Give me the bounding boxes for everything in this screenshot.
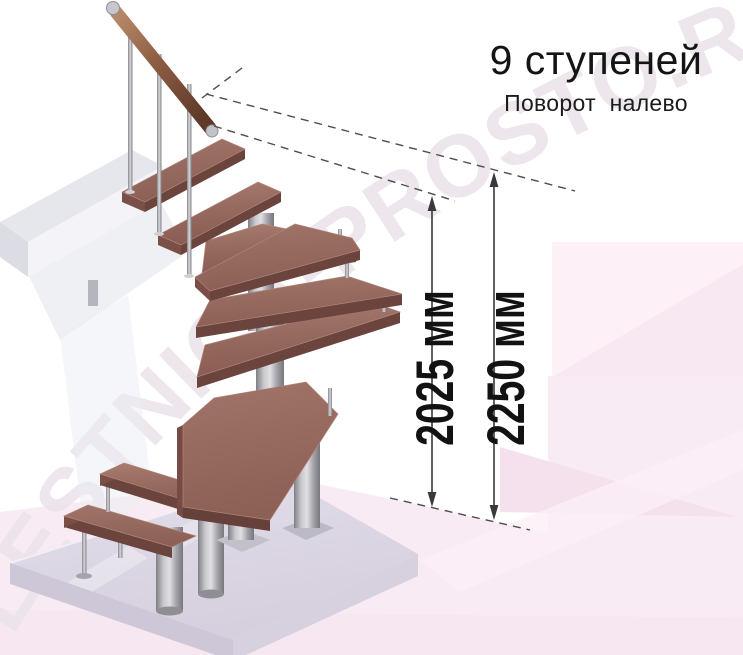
baluster-3-base	[184, 274, 194, 278]
page-subtitle: Поворот налево	[436, 90, 743, 117]
beam-bracket	[88, 280, 98, 306]
column-mid-low-bottom	[198, 590, 224, 599]
diagram-canvas: LESTNICA-PROSTO.RU	[0, 0, 743, 655]
extension-line-rail	[202, 68, 242, 98]
stud-3-4	[328, 388, 332, 416]
dimension-label-outer: 2250 мм	[476, 290, 535, 446]
column-left-wide-bottom	[156, 607, 183, 616]
dim-2025-arrow-down	[428, 492, 437, 507]
leg-step1-left	[82, 531, 87, 575]
baluster-2-base	[154, 232, 164, 236]
dimension-label-inner: 2025 мм	[405, 290, 464, 446]
baluster-1	[128, 30, 133, 192]
dim-2250-arrow-down	[490, 505, 499, 520]
page-title: 9 ступеней	[436, 40, 743, 81]
baluster-1-base	[125, 190, 135, 194]
handrail-top-cap	[107, 2, 120, 15]
heading-block: 9 ступеней Поворот налево	[436, 40, 743, 117]
baluster-2	[157, 54, 162, 234]
tread-3-left	[177, 425, 183, 518]
leg-step1-left-foot	[76, 573, 92, 579]
